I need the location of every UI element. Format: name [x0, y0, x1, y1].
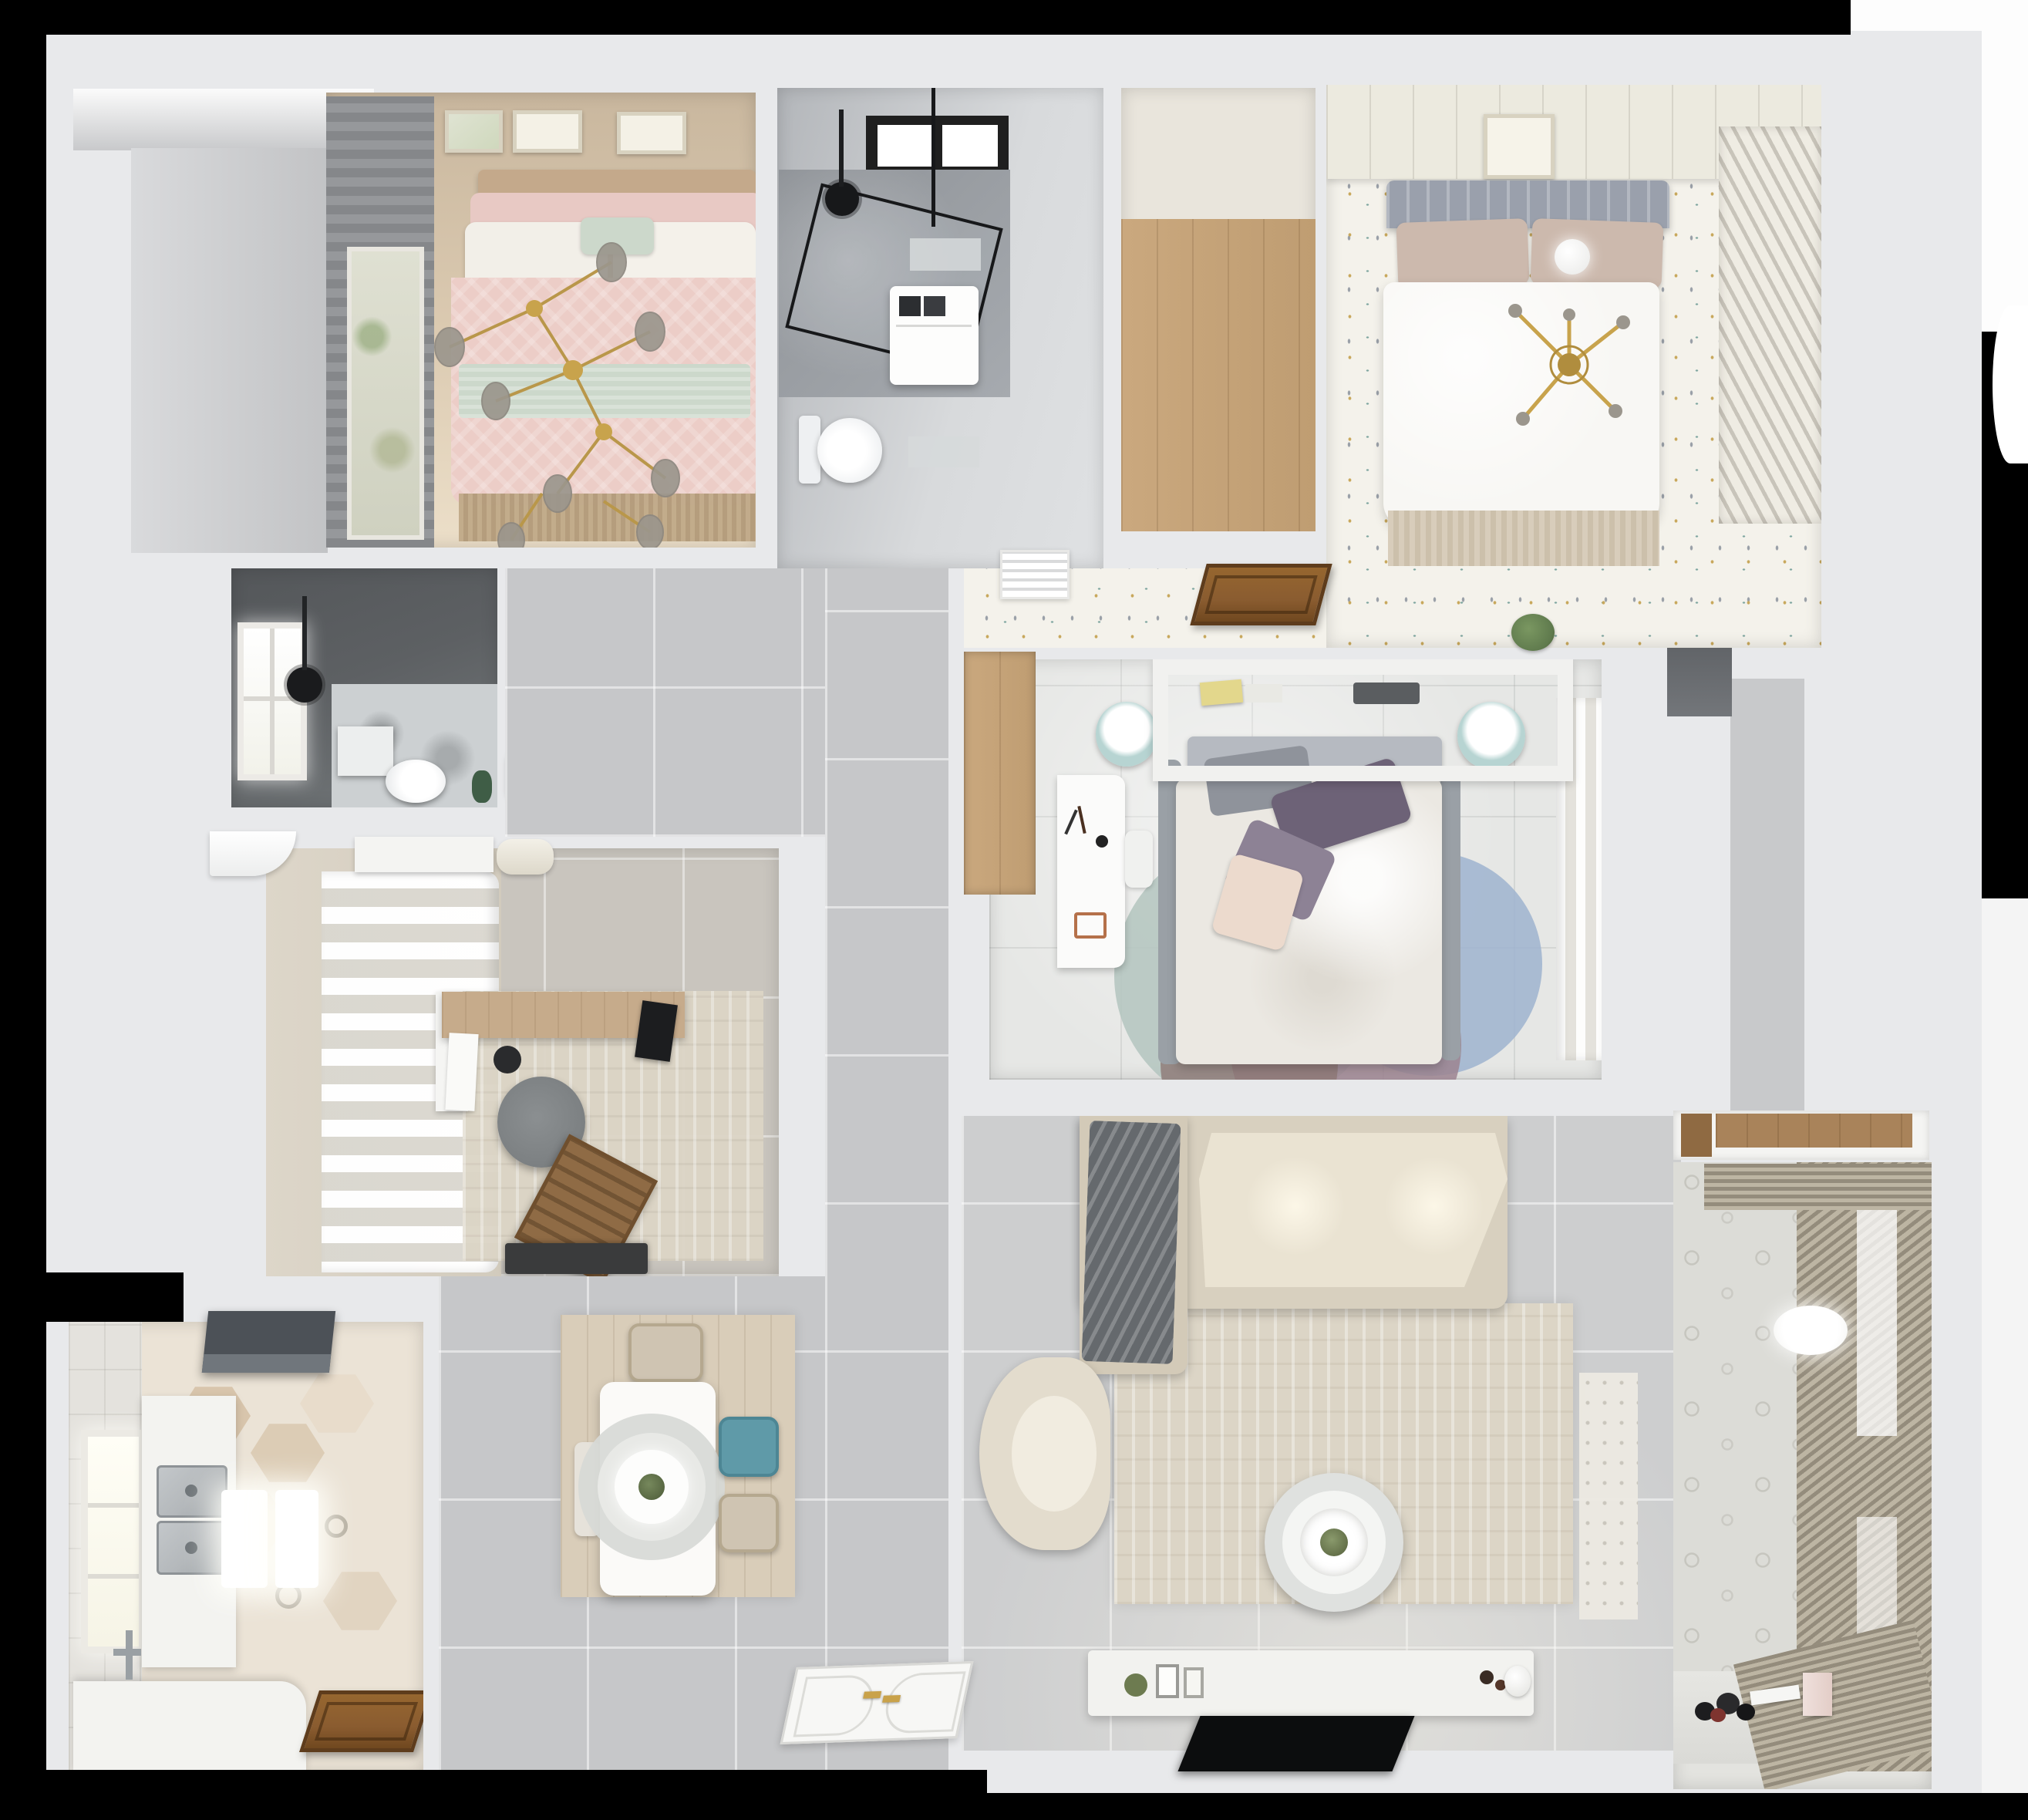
kitchen-sink-lower — [157, 1521, 227, 1575]
room-master-bedroom — [1326, 85, 1821, 648]
bed2-rail-right — [1440, 771, 1460, 1060]
hex-tile-cream-2 — [300, 1371, 374, 1436]
room-study — [266, 848, 779, 1276]
room-bathroom-small — [231, 568, 497, 807]
stool-teal-left — [1096, 702, 1157, 767]
kitchen-glow-panel-2 — [275, 1490, 318, 1588]
floor-plan-canvas — [0, 0, 2028, 1820]
toy-block-red — [1710, 1708, 1726, 1722]
room-living — [962, 1116, 1681, 1797]
console-dark-bottles — [1480, 1670, 1494, 1684]
room-balcony — [1673, 1162, 1932, 1789]
shelf-plant — [1511, 614, 1555, 651]
console-green-decor — [1124, 1673, 1147, 1697]
shower-head — [825, 182, 859, 216]
frame-left-bar — [0, 0, 46, 1820]
dining-chair-top — [628, 1323, 703, 1382]
desk-lamp — [494, 1046, 521, 1073]
bath2-toilet — [386, 760, 446, 803]
storage-wood-shelf — [1716, 1114, 1912, 1148]
hex-motif-3 — [325, 1515, 348, 1538]
toy-block-3 — [1737, 1704, 1755, 1721]
background-white-blob — [1993, 305, 2028, 463]
hex-tile-tan-2 — [251, 1421, 325, 1485]
kitchen-window-bar-2 — [88, 1574, 139, 1579]
desk-pen-2 — [1077, 806, 1086, 834]
hex-tile-tan-4 — [323, 1569, 397, 1633]
room-kitchen — [69, 1322, 423, 1773]
kitchen-faucet-bar — [113, 1649, 141, 1656]
kitchen-window — [81, 1430, 146, 1653]
bedroom2-shelf-frame — [1153, 659, 1573, 781]
master-foot-runner — [1388, 511, 1659, 566]
sofa-seat — [1199, 1133, 1508, 1287]
armchair — [979, 1357, 1110, 1550]
toy-gift-bag — [1803, 1673, 1832, 1716]
bath2-window-mullion-v — [270, 629, 275, 774]
master-pillow-right — [1531, 218, 1664, 289]
white-sphere-lamp — [1555, 239, 1590, 275]
desk-black-dot — [1096, 835, 1108, 848]
louver-wardrobe — [1719, 126, 1821, 524]
wall-frame-botanical-2 — [513, 110, 582, 153]
background-right-low — [1974, 895, 2028, 1797]
bedroom2-desk — [1057, 775, 1125, 968]
bedroom2-chair — [1125, 831, 1153, 888]
flat-tv — [1177, 1716, 1414, 1771]
washer-lid-line — [896, 325, 972, 327]
frame-left-wedge — [0, 1272, 184, 1322]
kitchen-door-panel — [315, 1702, 418, 1741]
bath2-shower-arm — [302, 596, 307, 670]
master-door-panel — [1204, 575, 1317, 614]
balcony-pattern-wall — [1673, 1162, 1812, 1702]
shelf-books — [1200, 679, 1243, 706]
bath2-shower-head — [287, 667, 322, 703]
blinds-bright-pane-1 — [1857, 1205, 1897, 1436]
kitchen-bottom-counter — [73, 1681, 306, 1773]
sink-drain-2 — [185, 1542, 197, 1554]
blinds-top-stack — [1704, 1164, 1932, 1210]
kitchen-window-bar-1 — [88, 1503, 139, 1508]
bath-mat-2 — [908, 436, 979, 467]
shelf-books-2 — [1245, 684, 1282, 703]
washer-control-panel-2 — [924, 296, 945, 316]
sofa-ceiling-glow-2 — [1384, 1156, 1484, 1256]
washing-machine — [890, 286, 979, 385]
frame-top-bar — [0, 0, 1851, 35]
room-bedroom-kids — [989, 659, 1602, 1080]
master-pillow-left — [1396, 218, 1530, 289]
bath2-window — [237, 622, 307, 780]
dining-chair-bottom — [719, 1494, 779, 1552]
room-walk-in-closet — [1121, 88, 1316, 531]
toilet-bowl — [817, 418, 882, 483]
sink-drain-1 — [185, 1485, 197, 1497]
kitchen-open-door — [299, 1690, 423, 1752]
storage-wood-side — [1681, 1114, 1712, 1157]
wall-shade-left-column — [131, 148, 328, 553]
study-floor-mat — [505, 1243, 648, 1274]
desk-copper-item — [1074, 912, 1107, 939]
shower-arm — [839, 110, 844, 187]
desk-paper — [445, 1033, 478, 1111]
study-top-cabinet — [355, 837, 494, 872]
bathroom-window-pane-right — [942, 125, 998, 167]
desk-pen-1 — [1064, 810, 1077, 835]
hall-upper — [505, 568, 825, 837]
bathroom-window-pane-left — [878, 125, 933, 167]
sofa-gray-blanket — [1082, 1121, 1181, 1364]
frame-bottom-notch — [0, 1770, 987, 1820]
shelf-dark-object — [1353, 682, 1420, 704]
dining-entry-zone — [439, 1276, 825, 1797]
console-frames — [1156, 1664, 1179, 1698]
room-bathroom-main — [777, 88, 1103, 568]
tv-console — [1088, 1650, 1534, 1716]
master-wall-frame — [1484, 114, 1555, 179]
console-frames-2 — [1184, 1667, 1204, 1698]
study-top-roll — [497, 839, 554, 875]
coffee-table-plant — [1320, 1528, 1348, 1556]
wall-frame-botanical-3 — [617, 112, 686, 154]
balcony-storage-niche — [1673, 1111, 1929, 1160]
ac-vent — [1000, 550, 1070, 599]
dining-chair-teal — [719, 1417, 779, 1477]
entry-door-panel-left — [793, 1674, 879, 1737]
bath2-wall-shelf — [338, 726, 393, 776]
corridor — [825, 568, 948, 1797]
entry-door — [780, 1661, 974, 1744]
entry-door-panel-right — [880, 1671, 965, 1734]
entry-door-handle-right — [882, 1695, 901, 1703]
kitchen-glow-panel-1 — [221, 1490, 268, 1588]
sputnik-chandelier — [1488, 292, 1650, 446]
master-open-door — [1190, 564, 1332, 625]
bedroom2-closet-niche — [964, 652, 1036, 895]
sofa-ceiling-glow-1 — [1245, 1156, 1346, 1256]
range-hood — [202, 1311, 335, 1373]
bedroom-pink-window — [347, 247, 424, 540]
gold-branch-chandelier — [419, 170, 696, 548]
balcony-ceiling-lamp — [1774, 1306, 1848, 1355]
dining-pendant-plant — [638, 1474, 665, 1500]
bath2-plant — [472, 770, 492, 803]
entry-door-handle-left — [863, 1691, 881, 1699]
balcony-sheer-strip — [1579, 1373, 1638, 1619]
wall-frame-botanical-1 — [445, 110, 503, 153]
kitchen-sink-upper — [157, 1465, 227, 1518]
washer-control-panel — [899, 296, 921, 316]
shower-glass-stem — [931, 88, 935, 227]
wall-shade-right-column — [1730, 679, 1804, 1111]
wall-niche-dark — [1667, 639, 1732, 716]
room-bedroom-pink — [326, 93, 756, 548]
armchair-seat — [1012, 1396, 1097, 1512]
bath-mat-1 — [910, 238, 981, 271]
range-hood-face — [202, 1354, 332, 1373]
closet-wood-floor — [1121, 219, 1316, 531]
console-white-vase — [1504, 1666, 1531, 1697]
